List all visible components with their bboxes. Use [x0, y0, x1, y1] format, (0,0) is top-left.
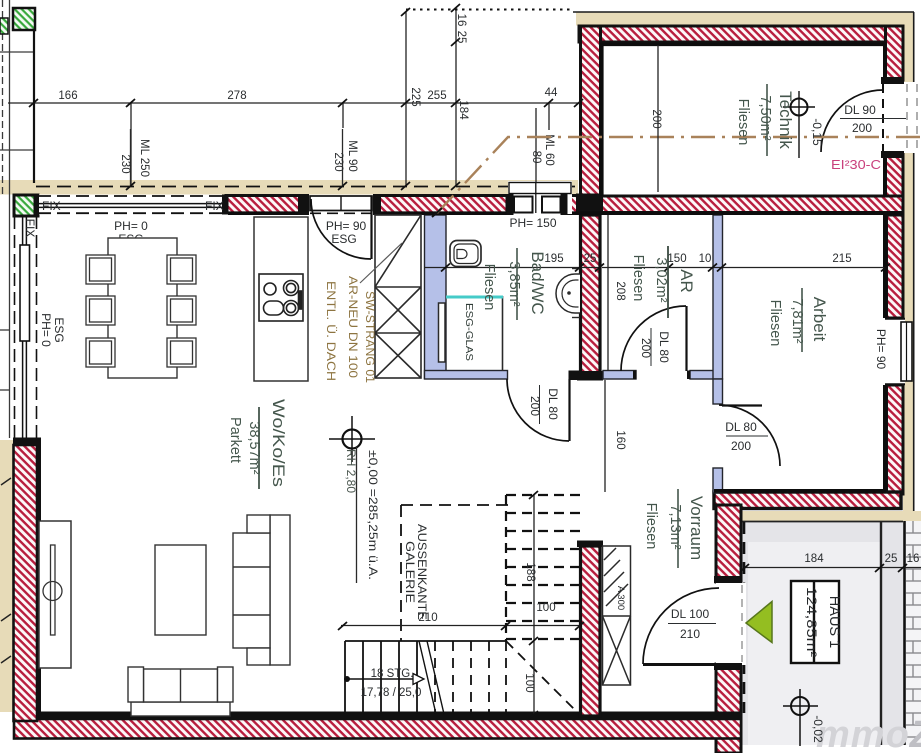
svg-text:AUSSENKANTE: AUSSENKANTE	[415, 524, 427, 620]
svg-text:7,81m²: 7,81m²	[789, 298, 805, 343]
svg-text:mmoZ: mmoZ	[816, 714, 921, 753]
svg-text:GALERIE: GALERIE	[403, 541, 415, 603]
svg-text:210: 210	[418, 612, 437, 624]
svg-text:DL 80: DL 80	[725, 420, 757, 434]
svg-text:ESG-GLAS: ESG-GLAS	[463, 303, 475, 361]
svg-text:225: 225	[409, 87, 421, 106]
svg-text:184: 184	[457, 100, 469, 120]
svg-text:10: 10	[699, 253, 712, 265]
svg-text:166: 166	[58, 90, 77, 102]
svg-text:230: 230	[119, 154, 131, 173]
svg-text:255: 255	[427, 90, 446, 102]
svg-text:25: 25	[584, 253, 597, 265]
svg-text:PH= 90: PH= 90	[326, 219, 367, 233]
svg-text:ML 60: ML 60	[543, 134, 555, 166]
svg-text:200: 200	[852, 121, 872, 135]
svg-text:ML 90: ML 90	[346, 140, 358, 172]
svg-text:100: 100	[523, 673, 535, 692]
svg-text:160: 160	[614, 430, 626, 449]
svg-text:RH 2,80: RH 2,80	[344, 449, 358, 493]
svg-text:230: 230	[332, 152, 344, 171]
svg-text:Wo/Ko/Es: Wo/Ko/Es	[269, 399, 288, 487]
svg-text:PH= 0: PH= 0	[39, 313, 53, 347]
svg-text:±0,00 =285,25m ü.A.: ±0,00 =285,25m ü.A.	[366, 450, 380, 580]
svg-text:A 300: A 300	[615, 586, 626, 610]
svg-text:184: 184	[804, 553, 824, 565]
svg-text:188: 188	[524, 562, 536, 581]
svg-text:200: 200	[528, 396, 542, 416]
svg-text:PH= 90: PH= 90	[874, 329, 888, 370]
svg-text:25: 25	[885, 553, 898, 565]
svg-text:-0,15: -0,15	[810, 118, 824, 146]
svg-text:FIX: FIX	[42, 199, 61, 213]
svg-text:AR: AR	[677, 269, 696, 293]
svg-text:Arbeit: Arbeit	[810, 297, 829, 342]
svg-text:EI²30-C: EI²30-C	[831, 158, 881, 172]
svg-text:PH= 150: PH= 150	[509, 216, 556, 230]
svg-text:44: 44	[545, 87, 558, 99]
svg-text:Fliesen: Fliesen	[630, 255, 646, 302]
svg-text:Vorraum: Vorraum	[687, 496, 706, 560]
svg-text:Fliesen: Fliesen	[767, 300, 783, 347]
svg-text:Technik: Technik	[776, 91, 795, 149]
svg-text:Bad/WC: Bad/WC	[528, 251, 547, 314]
svg-text:3,85m²: 3,85m²	[506, 261, 522, 306]
svg-text:38,57m²: 38,57m²	[246, 421, 262, 474]
svg-text:ML 250: ML 250	[138, 139, 150, 177]
svg-text:200: 200	[650, 109, 662, 128]
svg-text:17,78 / 25,0: 17,78 / 25,0	[361, 687, 422, 699]
svg-text:3,02m²: 3,02m²	[653, 257, 669, 302]
svg-text:150: 150	[667, 253, 686, 265]
svg-text:208: 208	[614, 281, 626, 300]
svg-text:278: 278	[227, 90, 246, 102]
svg-text:210: 210	[680, 627, 700, 641]
svg-text:16: 16	[907, 553, 920, 565]
svg-text:Parkett: Parkett	[227, 417, 243, 463]
svg-text:AR-NEU DN 100: AR-NEU DN 100	[346, 276, 360, 378]
svg-text:7,50m²: 7,50m²	[757, 95, 773, 140]
svg-text:124,85m²: 124,85m²	[804, 587, 819, 658]
svg-text:DL 90: DL 90	[844, 103, 876, 117]
svg-text:PH= 0: PH= 0	[114, 219, 148, 233]
svg-text:DL 100: DL 100	[671, 607, 710, 621]
svg-text:-0,02: -0,02	[811, 715, 825, 743]
svg-text:ESG: ESG	[331, 232, 356, 246]
svg-text:DL 80: DL 80	[657, 331, 671, 363]
svg-text:200: 200	[731, 439, 751, 453]
svg-text:7,13m²: 7,13m²	[667, 504, 683, 549]
svg-text:16: 16	[455, 14, 467, 27]
svg-text:215: 215	[832, 253, 851, 265]
svg-text:FIX: FIX	[205, 199, 224, 213]
svg-text:80: 80	[530, 151, 542, 164]
svg-text:HAUS 1: HAUS 1	[826, 596, 842, 648]
svg-text:Fliesen: Fliesen	[735, 99, 751, 146]
svg-text:Fliesen: Fliesen	[481, 264, 497, 311]
svg-text:200: 200	[639, 338, 653, 358]
svg-text:25: 25	[455, 31, 467, 44]
svg-text:18 STG.: 18 STG.	[371, 668, 414, 680]
svg-text:SW-STRANG 01: SW-STRANG 01	[363, 291, 377, 383]
svg-text:FIX: FIX	[23, 219, 37, 238]
svg-text:ENTL. Ü. DACH: ENTL. Ü. DACH	[324, 281, 338, 381]
svg-text:100: 100	[536, 602, 555, 614]
svg-text:DL 80: DL 80	[546, 388, 560, 420]
svg-text:ESG: ESG	[52, 317, 66, 342]
svg-text:Fliesen: Fliesen	[643, 503, 659, 550]
